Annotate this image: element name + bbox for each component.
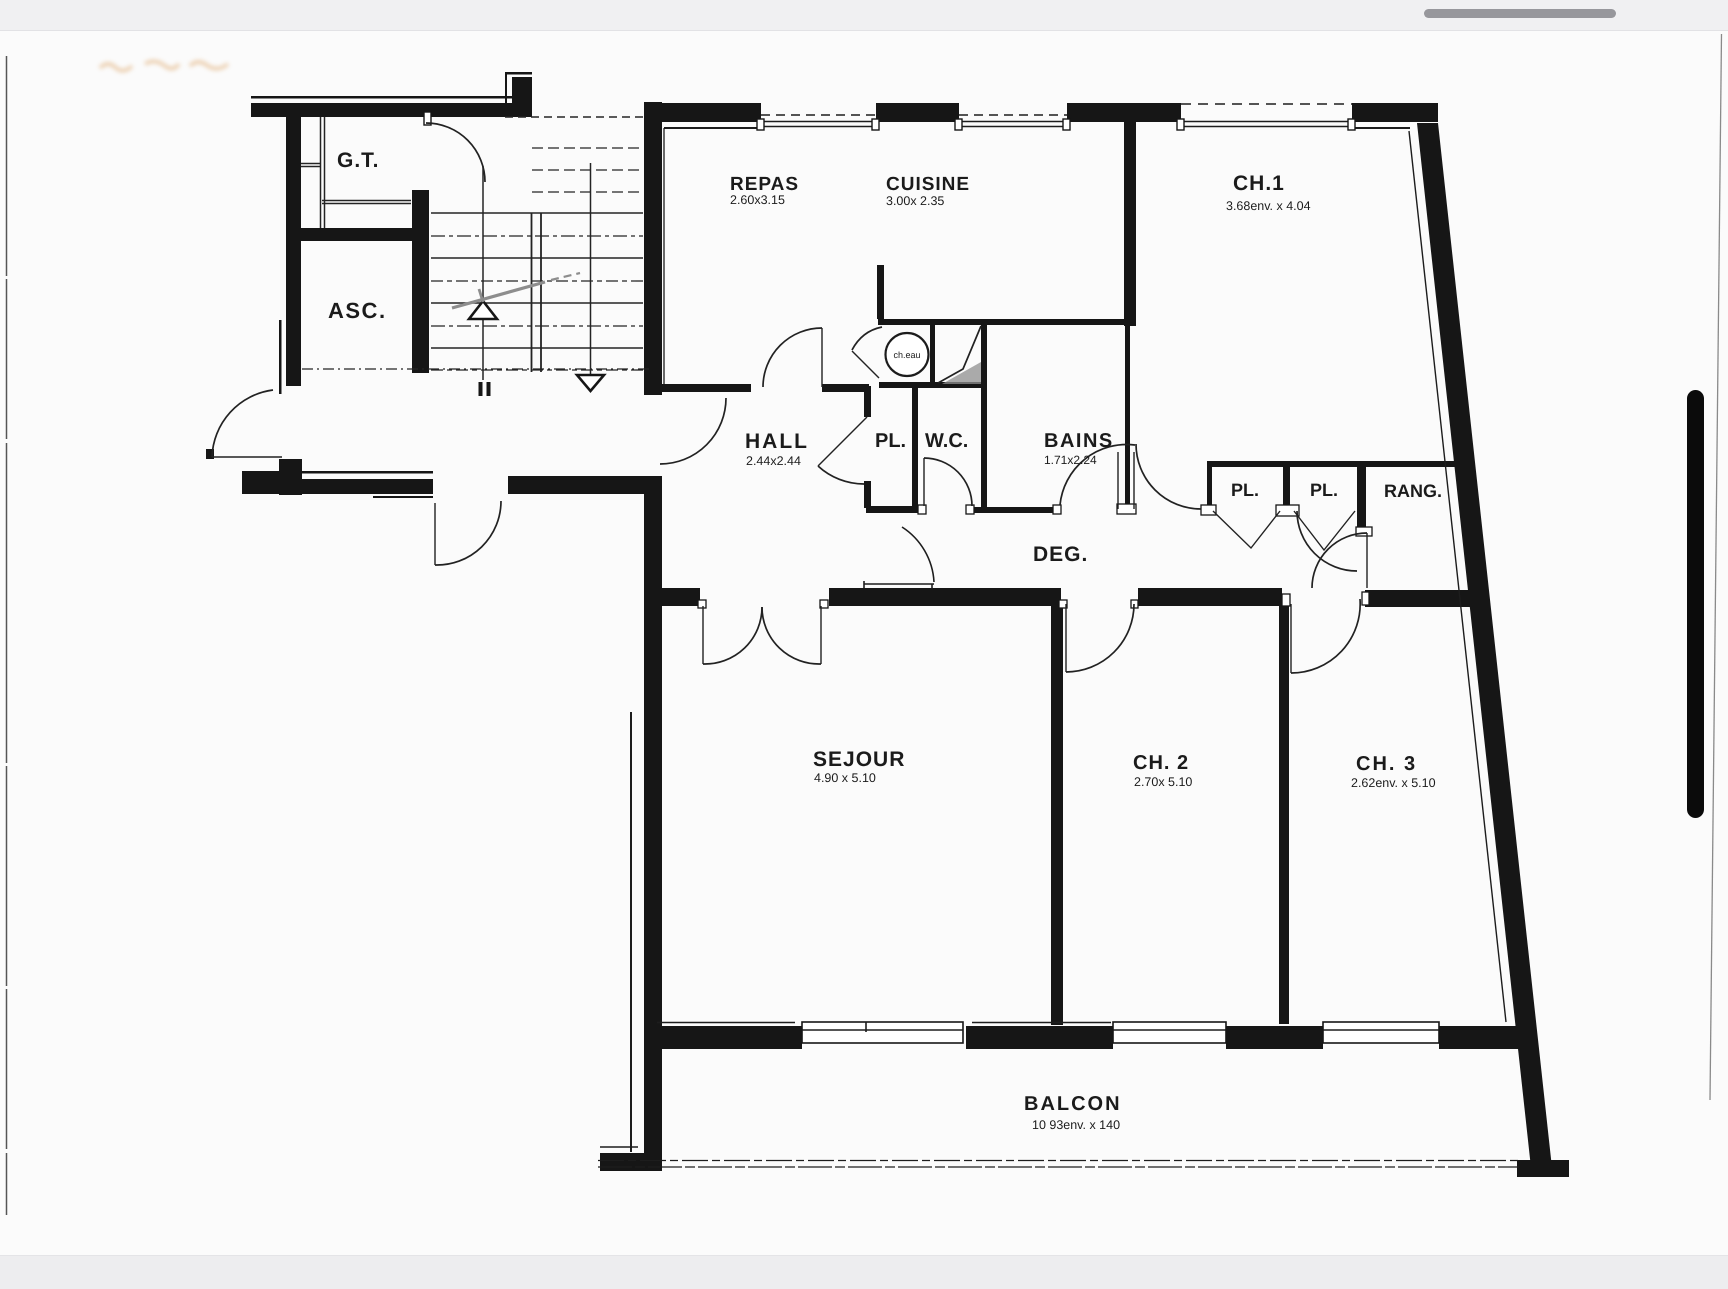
svg-text:SEJOUR: SEJOUR: [813, 748, 905, 771]
svg-text:W.C.: W.C.: [925, 430, 968, 452]
svg-text:3.68env. x 4.04: 3.68env. x 4.04: [1226, 199, 1311, 213]
svg-text:ASC.: ASC.: [328, 298, 387, 323]
svg-text:2.62env. x 5.10: 2.62env. x 5.10: [1351, 776, 1436, 790]
svg-text:HALL: HALL: [745, 430, 809, 453]
svg-text:G.T.: G.T.: [337, 149, 380, 172]
svg-text:BAINS: BAINS: [1044, 430, 1114, 452]
svg-text:BALCON: BALCON: [1024, 1093, 1122, 1115]
svg-text:CUISINE: CUISINE: [886, 174, 970, 195]
svg-text:CH.1: CH.1: [1233, 172, 1285, 195]
svg-text:1.71x2.24: 1.71x2.24: [1044, 453, 1097, 467]
svg-text:ch.eau: ch.eau: [893, 350, 920, 360]
svg-text:2.60x3.15: 2.60x3.15: [730, 193, 785, 207]
svg-text:REPAS: REPAS: [730, 174, 799, 195]
svg-text:PL.: PL.: [875, 430, 906, 452]
svg-text:CH. 2: CH. 2: [1133, 752, 1189, 774]
svg-text:10 93env. x 140: 10 93env. x 140: [1032, 1118, 1120, 1132]
svg-text:2.44x2.44: 2.44x2.44: [746, 454, 801, 468]
svg-text:PL.: PL.: [1231, 480, 1259, 500]
svg-text:2.70x 5.10: 2.70x 5.10: [1134, 775, 1192, 789]
svg-text:PL.: PL.: [1310, 480, 1338, 500]
svg-text:DEG.: DEG.: [1033, 543, 1088, 566]
svg-text:3.00x 2.35: 3.00x 2.35: [886, 194, 944, 208]
svg-text:4.90 x 5.10: 4.90 x 5.10: [814, 771, 876, 785]
svg-text:CH. 3: CH. 3: [1356, 753, 1417, 775]
svg-text:RANG.: RANG.: [1384, 481, 1442, 501]
